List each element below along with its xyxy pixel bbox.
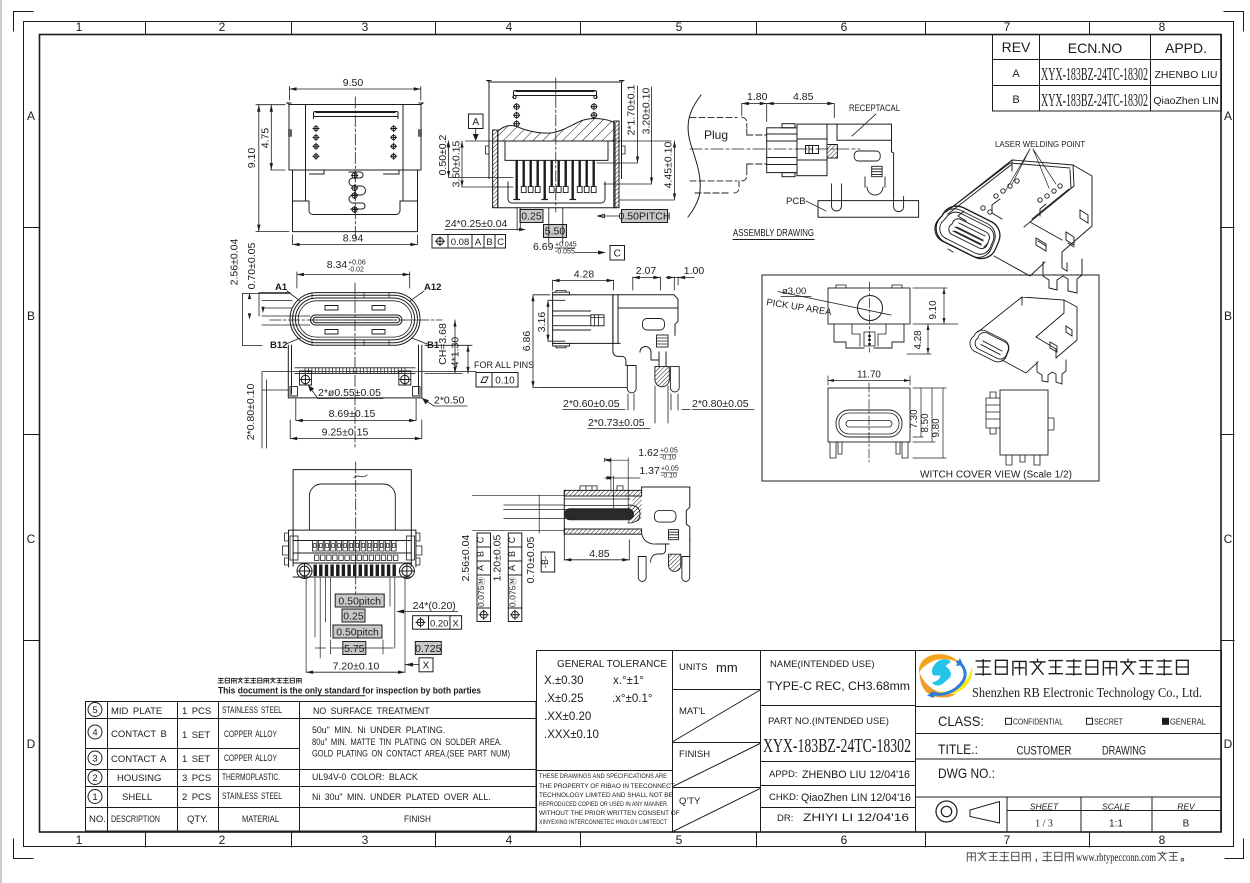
svg-text:24*(0.20): 24*(0.20) <box>413 600 456 612</box>
svg-text:0.20: 0.20 <box>430 619 449 630</box>
svg-text:CH=3.68: CH=3.68 <box>437 323 449 365</box>
svg-text:A: A <box>475 237 482 248</box>
svg-text:-0.10: -0.10 <box>661 473 677 480</box>
svg-text:.XX±0.20: .XX±0.20 <box>544 711 591 723</box>
svg-text:SCALE: SCALE <box>1102 802 1130 812</box>
svg-text:2: 2 <box>92 773 97 784</box>
svg-text:GENERAL TOLERANCE: GENERAL TOLERANCE <box>557 658 667 670</box>
svg-text:X: X <box>452 619 459 630</box>
svg-text:8: 8 <box>1159 833 1166 847</box>
svg-text:XYX-183BZ-24TC-18302: XYX-183BZ-24TC-18302 <box>1041 64 1148 84</box>
svg-text:0.08: 0.08 <box>451 237 470 248</box>
svg-text:2 PCS: 2 PCS <box>182 792 211 803</box>
svg-text:5: 5 <box>92 705 97 716</box>
svg-text:MID PLATE: MID PLATE <box>111 706 162 717</box>
svg-text:4.85: 4.85 <box>793 91 814 103</box>
svg-text:11.70: 11.70 <box>857 370 881 381</box>
svg-text:-0.055: -0.055 <box>555 249 575 256</box>
svg-text:UNITS: UNITS <box>679 662 708 673</box>
svg-text:CONFIDENTIAL: CONFIDENTIAL <box>1013 718 1064 727</box>
svg-text:QiaoZhen LIN 12/04'16: QiaoZhen LIN 12/04'16 <box>801 792 911 804</box>
svg-text:XYX-183BZ-24TC-18302: XYX-183BZ-24TC-18302 <box>1041 90 1148 110</box>
svg-text:.XXX±0.10: .XXX±0.10 <box>544 729 599 741</box>
svg-text:2.56±0.04: 2.56±0.04 <box>460 535 472 582</box>
svg-text:B: B <box>1224 309 1232 323</box>
svg-text:6.86: 6.86 <box>521 331 533 352</box>
svg-text:0.70±0.05: 0.70±0.05 <box>246 243 258 290</box>
svg-text:9.80: 9.80 <box>931 418 942 438</box>
svg-text:2*0.73±0.05: 2*0.73±0.05 <box>588 417 645 429</box>
svg-text:1.62: 1.62 <box>638 447 659 459</box>
svg-text:HOUSING: HOUSING <box>117 773 161 784</box>
svg-text:STAINLESS STEEL: STAINLESS STEEL <box>222 791 282 802</box>
svg-text:Ni 30u" MIN. UNDER PLATED OVER: Ni 30u" MIN. UNDER PLATED OVER ALL. <box>312 792 491 802</box>
svg-text:APPD:: APPD: <box>769 769 798 780</box>
svg-text:GENERAL: GENERAL <box>1170 718 1207 727</box>
svg-text:4: 4 <box>506 20 513 34</box>
svg-text:2.56±0.04: 2.56±0.04 <box>229 239 241 286</box>
svg-text:1 PCS: 1 PCS <box>182 706 211 717</box>
svg-text:2*0.80±0.05: 2*0.80±0.05 <box>692 398 749 410</box>
svg-text:WITHOUT THE PRIOR WRITTEN CONS: WITHOUT THE PRIOR WRITTEN CONSENT OF <box>539 810 680 817</box>
svg-text:Q'TY: Q'TY <box>679 796 701 807</box>
svg-text:X: X <box>423 661 430 672</box>
svg-text:5: 5 <box>676 20 683 34</box>
svg-text:5.50: 5.50 <box>545 226 566 238</box>
svg-text:24*0.25±0.04: 24*0.25±0.04 <box>445 218 508 230</box>
svg-text:50u" MIN. Ni UNDER PLATING.: 50u" MIN. Ni UNDER PLATING. <box>312 725 445 735</box>
svg-text:0.25: 0.25 <box>521 211 542 223</box>
svg-text:5.75: 5.75 <box>344 643 365 655</box>
svg-text:WITCH COVER VIEW (Scale 1/: WITCH COVER VIEW (Scale 1/2) <box>920 470 1072 481</box>
svg-text:DR:: DR: <box>777 813 793 824</box>
svg-text:0.25: 0.25 <box>343 611 364 623</box>
svg-text:2*1.70±0.1: 2*1.70±0.1 <box>625 84 637 135</box>
svg-text:B: B <box>476 551 486 557</box>
svg-text:LASER WELDING POINT: LASER WELDING POINT <box>995 140 1085 149</box>
svg-text:7.20±0.10: 7.20±0.10 <box>333 661 380 673</box>
svg-text:3: 3 <box>362 833 369 847</box>
svg-text:RECEPTACAL: RECEPTACAL <box>849 103 900 114</box>
svg-text:-0.02: -0.02 <box>348 267 364 274</box>
svg-text:MATERIAL: MATERIAL <box>242 814 279 825</box>
svg-text:B: B <box>1183 819 1190 830</box>
svg-text:9.25±0.15: 9.25±0.15 <box>322 427 369 439</box>
svg-text:2*0.60±0.05: 2*0.60±0.05 <box>563 398 620 410</box>
svg-text:9.10: 9.10 <box>928 300 939 320</box>
svg-text:C: C <box>27 532 36 546</box>
svg-text:1:1: 1:1 <box>1109 819 1123 830</box>
svg-text:QiaoZhen LIN: QiaoZhen LIN <box>1153 95 1218 107</box>
svg-text:-0.10: -0.10 <box>660 455 676 462</box>
svg-text:CHKD:: CHKD: <box>769 792 799 803</box>
svg-text:CLASS:: CLASS: <box>938 713 984 729</box>
svg-text:COPPER ALLOY: COPPER ALLOY <box>224 753 277 764</box>
svg-text:D: D <box>1224 737 1233 751</box>
svg-text:www.rbtypecconn.com: www.rbtypecconn.com <box>1076 852 1156 864</box>
svg-text:1: 1 <box>76 833 83 847</box>
svg-text:0.725: 0.725 <box>415 643 441 655</box>
svg-text:SHEET: SHEET <box>1030 802 1059 812</box>
svg-text:COPPER ALLOY: COPPER ALLOY <box>224 729 277 740</box>
svg-text:8: 8 <box>1159 20 1166 34</box>
svg-text:0.50±0.2: 0.50±0.2 <box>437 134 449 175</box>
svg-text:9.10: 9.10 <box>246 148 258 169</box>
svg-text:9.50: 9.50 <box>343 77 364 89</box>
svg-text:ZHIYI LI 12/04'16: ZHIYI LI 12/04'16 <box>803 812 909 824</box>
svg-text:ZHENBO LIU: ZHENBO LIU <box>1154 69 1217 81</box>
svg-text:PICK UP AREA: PICK UP AREA <box>766 297 833 318</box>
svg-text:2: 2 <box>219 833 226 847</box>
svg-text:4.28: 4.28 <box>913 330 924 350</box>
svg-text:A: A <box>1224 109 1232 123</box>
svg-text:.x°±0.1°: .x°±0.1° <box>612 693 652 705</box>
svg-text:X.±0.30: X.±0.30 <box>544 675 584 687</box>
svg-text:QTY.: QTY. <box>187 814 208 825</box>
svg-text:1 SET: 1 SET <box>182 730 210 741</box>
svg-text:+0.05: +0.05 <box>661 466 679 473</box>
svg-text:Shenzhen RB Electronic Technol: Shenzhen RB Electronic Technology Co., L… <box>972 685 1202 700</box>
svg-text:8.50: 8.50 <box>920 413 931 433</box>
svg-text:REV: REV <box>1177 802 1196 812</box>
svg-text:3.16: 3.16 <box>536 312 548 333</box>
svg-text:3.20±0.10: 3.20±0.10 <box>641 88 653 135</box>
svg-text:A1: A1 <box>275 282 288 293</box>
svg-text:7.30: 7.30 <box>909 409 920 429</box>
svg-text:B: B <box>486 237 492 248</box>
svg-text:NAME(INTENDED USE): NAME(INTENDED USE) <box>770 659 875 670</box>
svg-text:4.85: 4.85 <box>589 548 610 560</box>
svg-text:CONTACT A: CONTACT A <box>111 754 167 765</box>
svg-text:4: 4 <box>506 833 513 847</box>
svg-text:x.°±1°: x.°±1° <box>613 675 644 687</box>
svg-text:0.075Ⓜ: 0.075Ⓜ <box>476 577 486 608</box>
svg-text:CUSTOMER: CUSTOMER <box>1017 746 1072 758</box>
svg-text:FINISH: FINISH <box>679 749 710 760</box>
svg-text:C: C <box>507 536 517 543</box>
svg-text:0.70±0.05: 0.70±0.05 <box>525 537 537 584</box>
svg-text:1.80: 1.80 <box>747 91 768 103</box>
svg-text:3 PCS: 3 PCS <box>182 773 211 784</box>
svg-text:+0.05: +0.05 <box>660 448 678 455</box>
svg-text:A: A <box>476 565 486 571</box>
svg-text:Plug: Plug <box>704 128 728 142</box>
svg-text:80u" MIN. MATTE TIN PLATING ON: 80u" MIN. MATTE TIN PLATING ON SOLDER AR… <box>312 737 502 747</box>
svg-text:4.45±0.10: 4.45±0.10 <box>663 142 675 189</box>
svg-text:C: C <box>1224 532 1233 546</box>
svg-text:STAINLESS STEEL: STAINLESS STEEL <box>222 705 282 716</box>
svg-text:D: D <box>27 737 36 751</box>
svg-text:2*0.50: 2*0.50 <box>434 395 465 407</box>
svg-text:0.50pitch: 0.50pitch <box>336 627 379 639</box>
svg-text:4: 4 <box>92 728 97 739</box>
svg-text:0.10: 0.10 <box>495 376 515 387</box>
svg-text:B: B <box>27 309 35 323</box>
svg-text:7: 7 <box>1004 20 1011 34</box>
svg-text:8.34: 8.34 <box>327 259 348 271</box>
svg-text:0.50PITCH: 0.50PITCH <box>619 211 671 223</box>
svg-text:PART NO.(INTENDED USE): PART NO.(INTENDED USE) <box>768 716 889 727</box>
svg-text:0.075Ⓜ: 0.075Ⓜ <box>508 577 518 608</box>
svg-text:4.28: 4.28 <box>574 269 595 281</box>
svg-text:.X±0.25: .X±0.25 <box>544 693 584 705</box>
svg-text:8.94: 8.94 <box>343 233 364 245</box>
svg-text:B: B <box>1012 94 1019 106</box>
svg-text:DRAWING: DRAWING <box>1102 746 1146 758</box>
svg-text:0.50pitch: 0.50pitch <box>338 596 381 608</box>
svg-text:8.69±0.15: 8.69±0.15 <box>329 408 376 420</box>
svg-text:2: 2 <box>219 20 226 34</box>
svg-text:This document is the only stan: This document is the only standard for i… <box>218 686 481 696</box>
svg-text:REPRODUCED COPIED OR USED IN A: REPRODUCED COPIED OR USED IN ANY MANNER <box>539 801 667 808</box>
svg-text:2*ø0.55±0.05: 2*ø0.55±0.05 <box>318 387 381 399</box>
svg-text:UL94V-0 COLOR: BLACK: UL94V-0 COLOR: BLACK <box>312 772 418 782</box>
svg-text:NO.: NO. <box>89 814 106 825</box>
svg-text:A: A <box>507 565 517 571</box>
svg-text:DESCRIPTION: DESCRIPTION <box>111 814 160 825</box>
svg-text:SECRET: SECRET <box>1094 718 1123 727</box>
svg-text:1.00: 1.00 <box>684 265 705 277</box>
svg-text:REV: REV <box>1002 39 1031 55</box>
svg-text:2*0.80±0.10: 2*0.80±0.10 <box>245 384 257 441</box>
svg-text:4*1.30: 4*1.30 <box>450 337 462 368</box>
svg-text:APPD.: APPD. <box>1165 40 1207 56</box>
svg-text:-B-: -B- <box>540 556 550 568</box>
svg-text:+0.045: +0.045 <box>555 242 577 249</box>
svg-text:C: C <box>614 249 621 260</box>
svg-text:ø3.00: ø3.00 <box>782 286 806 297</box>
svg-text:FINISH: FINISH <box>404 814 431 825</box>
svg-text:C: C <box>476 536 486 543</box>
svg-text:3: 3 <box>92 754 97 765</box>
svg-text:TITLE.:: TITLE.: <box>938 741 978 757</box>
svg-text:2.07: 2.07 <box>636 265 657 277</box>
svg-text:DWG NO.:: DWG NO.: <box>938 765 995 781</box>
svg-text:THESE DRAWINGS AND SPECIFICATI: THESE DRAWINGS AND SPECIFICATIONS ARE <box>539 773 667 780</box>
svg-text:3.50±0.15: 3.50±0.15 <box>451 141 463 188</box>
svg-text:1 SET: 1 SET <box>182 754 210 765</box>
svg-text:+0.06: +0.06 <box>348 260 366 267</box>
svg-text:PCB: PCB <box>786 196 806 207</box>
svg-text:XINYEXING INTERCONNETEC HNOLGY: XINYEXING INTERCONNETEC HNOLGY LIMITEDCT <box>539 819 667 826</box>
svg-text:ECN.NO: ECN.NO <box>1068 40 1123 56</box>
svg-text:5: 5 <box>676 833 683 847</box>
svg-text:THERMOPLASTIC.: THERMOPLASTIC. <box>222 772 280 783</box>
svg-text:TECHNOLOGY LIMITED AND SHALL N: TECHNOLOGY LIMITED AND SHALL NOT BE <box>539 792 673 799</box>
svg-text:NO SURFACE TREATMENT: NO SURFACE TREATMENT <box>313 706 430 716</box>
svg-text:1: 1 <box>76 20 83 34</box>
svg-text:ZHENBO LIU 12/04'16: ZHENBO LIU 12/04'16 <box>802 769 910 781</box>
svg-text:A: A <box>1012 68 1020 80</box>
svg-text:B: B <box>507 551 517 557</box>
svg-text:A: A <box>27 109 35 123</box>
svg-text:6: 6 <box>841 20 848 34</box>
svg-text:6.69: 6.69 <box>533 241 554 253</box>
svg-text:FOR ALL PINS: FOR ALL PINS <box>474 360 534 370</box>
svg-text:GOLD PLATING ON CONTACT AREA.(: GOLD PLATING ON CONTACT AREA.(SEE PART N… <box>312 749 510 759</box>
svg-text:1.37: 1.37 <box>639 465 660 477</box>
svg-text:6: 6 <box>841 833 848 847</box>
svg-text:A: A <box>472 117 479 128</box>
svg-text:XYX-183BZ-24TC-18302: XYX-183BZ-24TC-18302 <box>763 736 911 757</box>
svg-text:mm: mm <box>716 660 738 675</box>
svg-text:CONTACT B: CONTACT B <box>111 729 167 740</box>
svg-text:SHELL: SHELL <box>122 792 152 803</box>
svg-text:7: 7 <box>1004 833 1011 847</box>
svg-text:C: C <box>497 237 504 248</box>
svg-text:1.20±0.05: 1.20±0.05 <box>492 535 504 582</box>
svg-text:B12: B12 <box>270 340 287 351</box>
svg-text:THE PROPERTY OF RIBAO IN TEECO: THE PROPERTY OF RIBAO IN TEECONNECT <box>539 783 675 790</box>
svg-text:4.75: 4.75 <box>260 128 272 149</box>
svg-text:3: 3 <box>362 20 369 34</box>
svg-text:1: 1 <box>92 792 97 803</box>
svg-text:ASSEMBLY DRAWING: ASSEMBLY DRAWING <box>733 228 814 239</box>
svg-text:TYPE-C REC, CH3.68mm: TYPE-C REC, CH3.68mm <box>767 681 910 693</box>
svg-text:A12: A12 <box>424 282 441 293</box>
svg-text:1 / 3: 1 / 3 <box>1035 819 1053 830</box>
svg-text:MAT'L: MAT'L <box>679 706 705 717</box>
